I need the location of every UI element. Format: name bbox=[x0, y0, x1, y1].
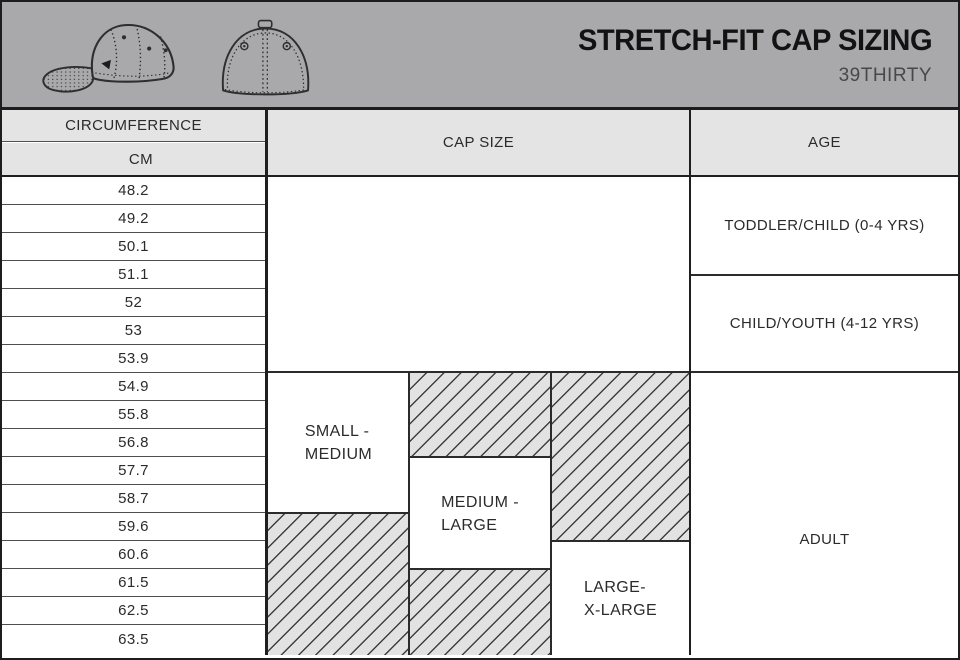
column-header-cm: CM bbox=[2, 143, 265, 175]
circumference-cell: 62.5 bbox=[2, 597, 265, 625]
subcolumn-divider-1 bbox=[408, 371, 410, 655]
cap-sizing-chart: STRETCH-FIT CAP SIZING 39THIRTY CIRCUMFE… bbox=[0, 0, 960, 660]
circumference-cell: 54.9 bbox=[2, 373, 265, 401]
size-block-medium-large: MEDIUM - LARGE bbox=[410, 458, 550, 569]
adult-section-top-line bbox=[266, 371, 958, 373]
circumference-column: 48.249.250.151.1525353.954.955.856.857.7… bbox=[2, 177, 265, 655]
column-header-age: AGE bbox=[691, 110, 958, 175]
cap-back-view-icon bbox=[208, 17, 324, 101]
age-cell-adult: ADULT bbox=[691, 373, 958, 655]
column-header-circumference: CIRCUMFERENCE bbox=[2, 110, 265, 142]
circumference-cell: 61.5 bbox=[2, 569, 265, 597]
size-block-small-medium: SMALL - MEDIUM bbox=[268, 373, 409, 513]
column-header-cap-size: CAP SIZE bbox=[268, 110, 689, 175]
circumference-cell: 49.2 bbox=[2, 205, 265, 233]
toddler-child-divider-line bbox=[691, 274, 958, 276]
circumference-cell: 55.8 bbox=[2, 401, 265, 429]
circumference-cell: 48.2 bbox=[2, 177, 265, 205]
size-label-large-xlarge: LARGE- X-LARGE bbox=[584, 576, 657, 622]
circumference-cell: 51.1 bbox=[2, 261, 265, 289]
size-block-large-xlarge: LARGE- X-LARGE bbox=[552, 542, 689, 655]
circumference-cell: 56.8 bbox=[2, 429, 265, 457]
page-subtitle: 39THIRTY bbox=[567, 65, 932, 87]
circumference-cell: 52 bbox=[2, 289, 265, 317]
page-title: STRETCH-FIT CAP SIZING bbox=[578, 24, 932, 58]
hatch-overlap-medium-large-upper bbox=[410, 373, 550, 457]
header-band: STRETCH-FIT CAP SIZING 39THIRTY bbox=[2, 2, 958, 110]
circumference-column-divider bbox=[265, 110, 268, 655]
age-column-divider bbox=[689, 110, 691, 655]
title-group: STRETCH-FIT CAP SIZING 39THIRTY bbox=[567, 24, 932, 87]
circumference-cell: 58.7 bbox=[2, 485, 265, 513]
size-label-medium-large: MEDIUM - LARGE bbox=[441, 491, 519, 537]
medium-large-top-line bbox=[409, 456, 551, 458]
circumference-cell: 63.5 bbox=[2, 625, 265, 654]
hatch-overlap-medium-large-lower bbox=[410, 570, 550, 655]
size-label-small-medium: SMALL - MEDIUM bbox=[305, 420, 372, 466]
medium-large-bottom-line bbox=[409, 568, 551, 570]
hatch-overlap-large-xlarge-upper bbox=[552, 373, 689, 541]
circumference-cell: 60.6 bbox=[2, 541, 265, 569]
sizing-table: CIRCUMFERENCE CM CAP SIZE AGE 48.249.250… bbox=[2, 110, 958, 655]
hatch-overlap-small-medium-lower bbox=[268, 514, 408, 655]
small-medium-bottom-line bbox=[268, 512, 410, 514]
circumference-cell: 50.1 bbox=[2, 233, 265, 261]
circumference-cell: 57.7 bbox=[2, 457, 265, 485]
circumference-cell: 53 bbox=[2, 317, 265, 345]
large-xlarge-top-line bbox=[551, 540, 689, 542]
subcolumn-divider-2 bbox=[550, 371, 552, 655]
circumference-cell: 53.9 bbox=[2, 345, 265, 373]
cap-side-view-icon bbox=[38, 13, 190, 105]
age-cell-child-youth: CHILD/YOUTH (4-12 YRS) bbox=[691, 276, 958, 371]
age-cell-toddler-child: TODDLER/CHILD (0-4 YRS) bbox=[691, 177, 958, 274]
circumference-cell: 59.6 bbox=[2, 513, 265, 541]
